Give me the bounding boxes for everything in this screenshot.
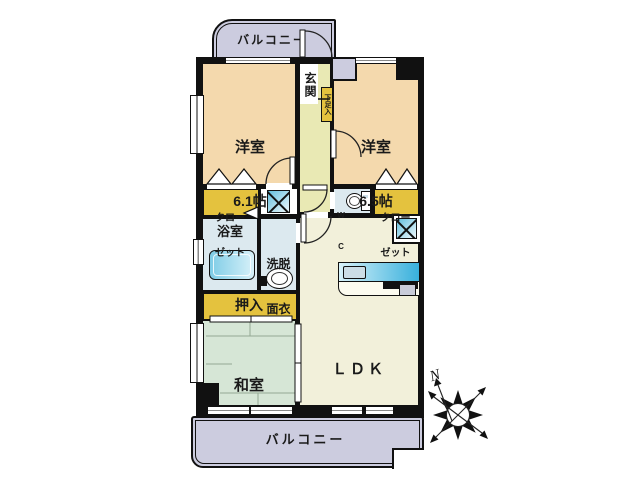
toilet-label: W C bbox=[336, 190, 346, 273]
washroom-label: 洗脱 面衣 bbox=[261, 227, 296, 347]
compass-rose: N bbox=[427, 367, 488, 443]
room-name: 洋室 bbox=[205, 139, 295, 157]
room-name: 洋室 bbox=[336, 139, 416, 157]
door-arc-hall bbox=[304, 189, 327, 212]
door-arc-ldk bbox=[304, 216, 331, 243]
closet-right-label: クロー ゼット bbox=[374, 190, 417, 282]
door-arc-entrance bbox=[305, 31, 332, 58]
balcony-bottom-label: バルコニー bbox=[191, 432, 420, 448]
balcony-bottom-notch bbox=[392, 448, 424, 469]
room-name: ＬＤＫ bbox=[308, 361, 410, 379]
compass-north-label: N bbox=[427, 367, 443, 386]
room-name: 和室 bbox=[205, 377, 293, 395]
floor-plan: バルコニー 下足入 bbox=[0, 0, 640, 480]
oshiire-label: 押入 bbox=[203, 297, 295, 314]
entrance-label: 玄関 bbox=[302, 66, 317, 104]
bathroom-label: 浴室 bbox=[205, 224, 255, 240]
